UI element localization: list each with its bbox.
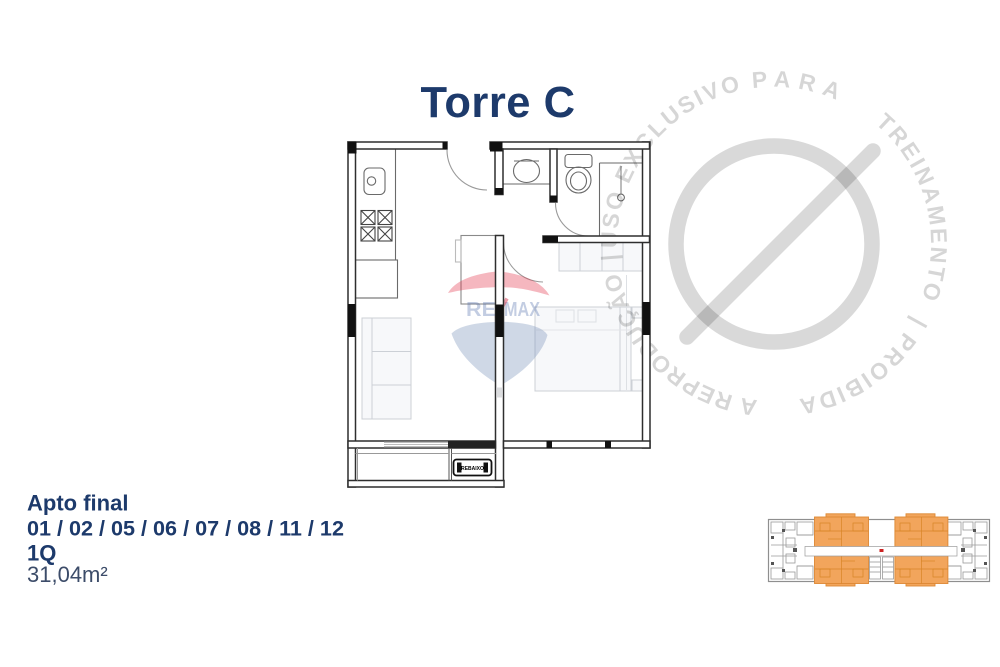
svg-text:REBAIXO: REBAIXO xyxy=(461,466,484,472)
svg-text:31,04m²: 31,04m² xyxy=(27,562,108,587)
svg-text:Apto final: Apto final xyxy=(27,491,128,516)
svg-text:01 / 02 / 05 / 06 / 07 / 08 /: 01 / 02 / 05 / 06 / 07 / 08 / 11 / 12 xyxy=(27,515,344,540)
svg-text:Torre C: Torre C xyxy=(421,79,576,127)
svg-text:RE: RE xyxy=(466,299,496,321)
svg-text:MAX: MAX xyxy=(504,299,541,321)
